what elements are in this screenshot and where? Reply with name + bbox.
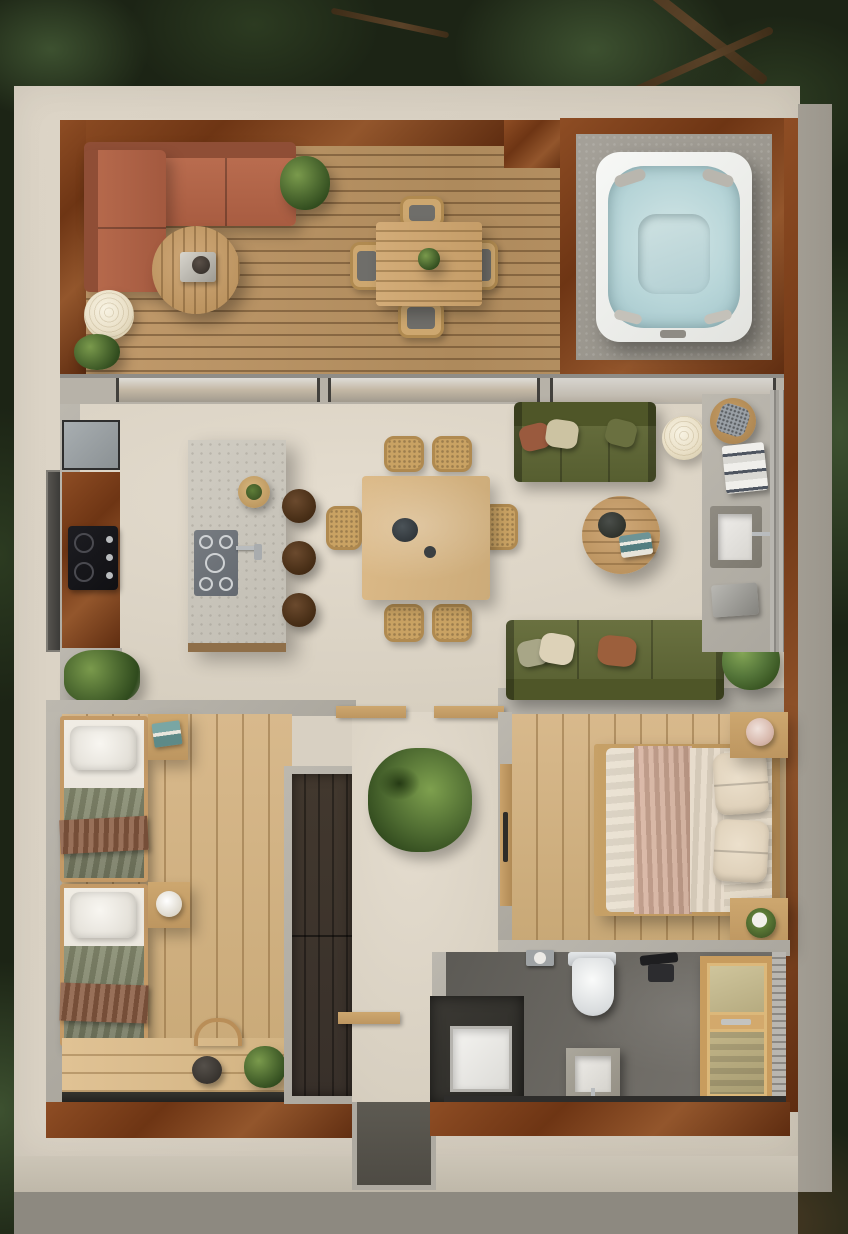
vanity-sink-surround [710, 506, 762, 568]
table-pot [598, 512, 626, 538]
fridge-panel [62, 420, 120, 470]
bar-stool [282, 541, 316, 575]
bed-pillow-pair-bottom [712, 819, 769, 884]
cooktop-knob [106, 572, 113, 579]
vanity-stool [710, 398, 756, 444]
pedestal-basin [566, 1048, 620, 1102]
island-induction-hob [194, 530, 238, 596]
burner-ring [219, 577, 233, 591]
pillow-seam [714, 781, 768, 787]
brown-throw [59, 982, 148, 1023]
bar-stool [282, 489, 316, 523]
desk-plant [244, 1046, 286, 1088]
hot-tub-seat-well [638, 214, 710, 294]
teapot [392, 518, 418, 542]
burner-ring [199, 535, 213, 549]
dining-chair [432, 436, 472, 472]
stacked-books [619, 532, 654, 558]
bed-pillow [70, 726, 136, 770]
bathroom-threshold-corten [430, 1102, 790, 1136]
cushion-sage [544, 418, 580, 450]
stool-cushion-patterned [714, 401, 752, 439]
dining-chair [384, 604, 424, 642]
deck-plant-large [280, 156, 330, 210]
frosted-pane-top [710, 966, 764, 1012]
bar-stool [282, 593, 316, 627]
burner-ring [74, 533, 94, 553]
chair-seat-pad [357, 251, 377, 281]
door-lintel [336, 706, 406, 718]
door-lintel [434, 706, 504, 718]
chair-seat-pad [407, 307, 435, 329]
single-bed-2 [60, 884, 148, 1046]
ground-step [14, 1192, 798, 1234]
kids-window-track [62, 1092, 290, 1102]
pillow-seam [714, 850, 768, 855]
floor-plan-scene [0, 0, 848, 1234]
blush-throw-blanket [634, 746, 692, 914]
door-handle [503, 812, 508, 862]
burner-ring [199, 577, 213, 591]
chair-seat-pad [409, 205, 435, 221]
fixture-body [648, 964, 674, 982]
bowl-herbs [246, 484, 262, 500]
sauna-door [700, 956, 774, 1104]
sauna-door-track [772, 952, 786, 1104]
wall-cooktop [68, 526, 118, 590]
nightstand-lamp [148, 882, 190, 928]
island-bowl [238, 476, 270, 508]
toilet [572, 958, 614, 1016]
wardrobe-seam [292, 935, 352, 937]
plinth-side-face [798, 104, 832, 1192]
towel-fixture [640, 948, 682, 986]
deck-floor-lamp [84, 290, 134, 340]
right-outer-wall [784, 118, 798, 1112]
bed-pillow [70, 892, 136, 938]
vase [746, 718, 774, 746]
dining-chair [432, 604, 472, 642]
teal-books [151, 720, 182, 748]
single-bed-1 [60, 716, 148, 882]
kitchen-plant [64, 650, 140, 704]
tray-bowl [192, 256, 210, 274]
deck-corten-planter [504, 120, 568, 168]
island-faucet-body [254, 544, 262, 560]
dining-chair [384, 436, 424, 472]
door-handle [721, 1019, 751, 1025]
toilet-paper-holder [526, 950, 554, 966]
dining-table [362, 476, 490, 600]
burner-ring [219, 535, 233, 549]
burner-ring [74, 562, 94, 582]
cooktop-knob [106, 554, 113, 561]
metal-tray [711, 582, 759, 617]
living-floor-lamp [662, 416, 706, 460]
desk-teapot [192, 1056, 222, 1084]
wardrobe-unit [292, 774, 352, 1096]
frosted-pane-bottom [710, 1032, 764, 1094]
nightstand-top [730, 712, 788, 758]
table-centerpiece-plant [418, 248, 440, 270]
nightstand-books [148, 714, 188, 760]
tea-cup [424, 546, 436, 558]
basin-bowl [575, 1056, 611, 1092]
bed-pillow-pair-top [712, 750, 770, 816]
vanity-faucet [752, 532, 770, 536]
cushion-rust [597, 634, 638, 668]
glass-door-panel [328, 378, 540, 402]
entry-step [352, 1102, 436, 1190]
shower-tray [450, 1026, 512, 1092]
dining-chair [326, 506, 362, 550]
bedroom-sliding-door [500, 764, 512, 906]
hallway-plant [368, 748, 472, 852]
round-table-lamp [156, 891, 182, 917]
hot-tub-control-panel [660, 330, 686, 338]
towel-stack [722, 442, 769, 494]
burner-ring [205, 553, 225, 573]
cooktop-knob [106, 536, 113, 543]
plant-bowl [746, 908, 776, 938]
glass-door-panel [116, 378, 320, 402]
deck-plant-small [74, 334, 120, 370]
paper-roll [534, 952, 546, 964]
door-lintel [338, 1012, 400, 1024]
kids-room-threshold-corten [46, 1102, 360, 1138]
brown-throw [59, 816, 149, 855]
vanity-basin [718, 514, 752, 560]
